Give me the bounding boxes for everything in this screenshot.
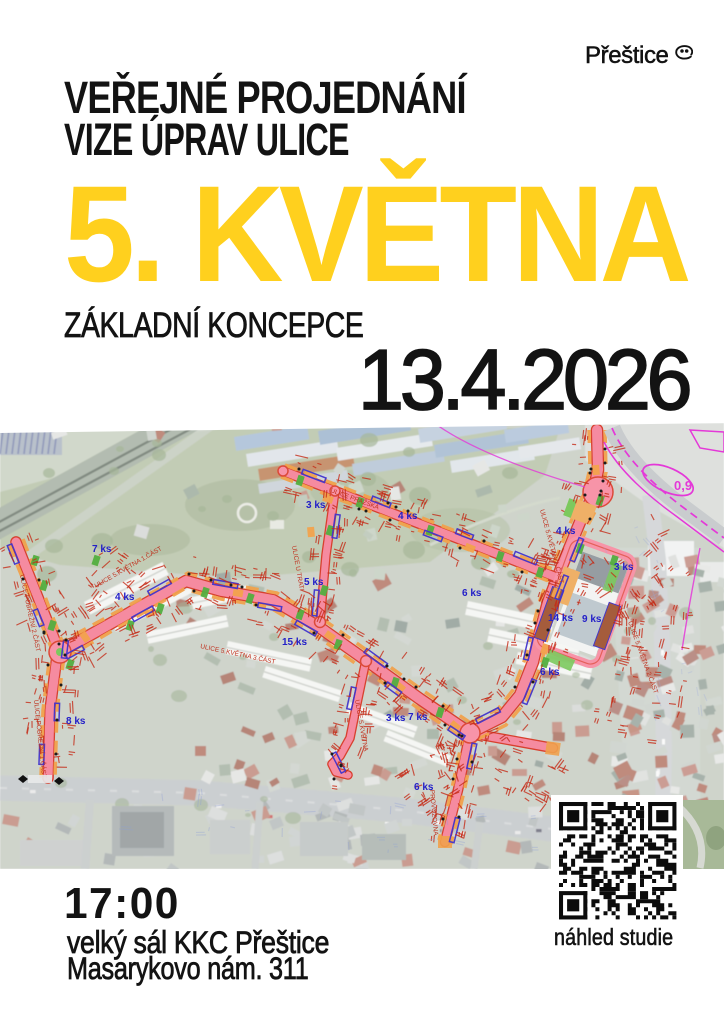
svg-text:3 ks: 3 ks xyxy=(614,562,634,573)
svg-text:7 ks: 7 ks xyxy=(408,712,428,723)
svg-text:7 ks: 7 ks xyxy=(92,544,112,555)
svg-text:6 ks: 6 ks xyxy=(414,782,434,793)
svg-text:6 ks: 6 ks xyxy=(540,667,560,678)
svg-text:9 ks: 9 ks xyxy=(582,614,602,625)
svg-text:5 ks: 5 ks xyxy=(304,577,324,588)
svg-text:3 ks: 3 ks xyxy=(306,500,326,511)
svg-text:4 ks: 4 ks xyxy=(556,526,576,537)
svg-text:6 ks: 6 ks xyxy=(462,588,482,599)
svg-text:14 ks: 14 ks xyxy=(548,613,573,624)
svg-text:0,9: 0,9 xyxy=(674,478,692,493)
svg-text:15 ks: 15 ks xyxy=(282,637,307,648)
svg-text:4 ks: 4 ks xyxy=(398,511,418,522)
svg-text:8 ks: 8 ks xyxy=(66,716,86,727)
svg-text:4 ks: 4 ks xyxy=(115,592,135,603)
svg-text:3 ks: 3 ks xyxy=(386,713,406,724)
